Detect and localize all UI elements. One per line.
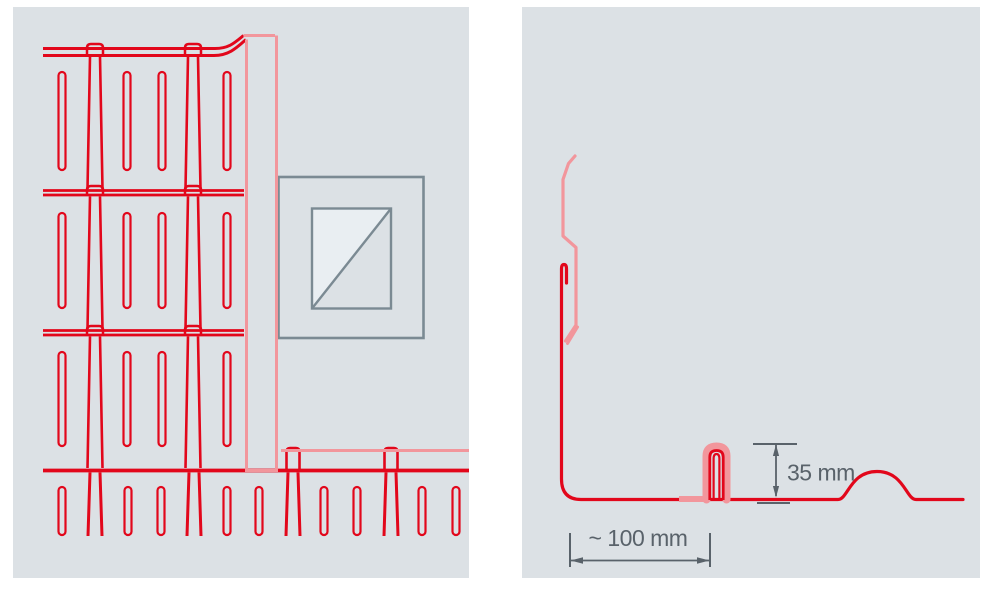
flashing-profile-line: [562, 265, 964, 500]
dimension-100mm: ~ 100 mm: [570, 525, 710, 567]
dimension-35mm: 35 mm: [753, 444, 855, 498]
arrow-right-icon: [697, 557, 710, 564]
arrow-down-icon: [773, 486, 779, 498]
arrow-up-icon: [773, 445, 779, 457]
section-drawing: 35 mm ~ 100 mm: [522, 7, 980, 578]
arrow-left-icon: [571, 557, 584, 564]
elevation-panel: [13, 7, 469, 578]
roof-tiles-elevation: [43, 36, 469, 537]
seam-height-label: 35 mm: [787, 460, 855, 486]
illustration-canvas: 35 mm ~ 100 mm: [0, 0, 992, 589]
section-panel: 35 mm ~ 100 mm: [522, 7, 980, 578]
window: [279, 177, 424, 338]
wall-flashing-section: [562, 265, 964, 500]
flashing-width-label: ~ 100 mm: [589, 525, 688, 551]
elevation-drawing: [13, 7, 469, 578]
upper-cladding-section: [563, 156, 578, 344]
standing-seam-section: [679, 447, 727, 501]
